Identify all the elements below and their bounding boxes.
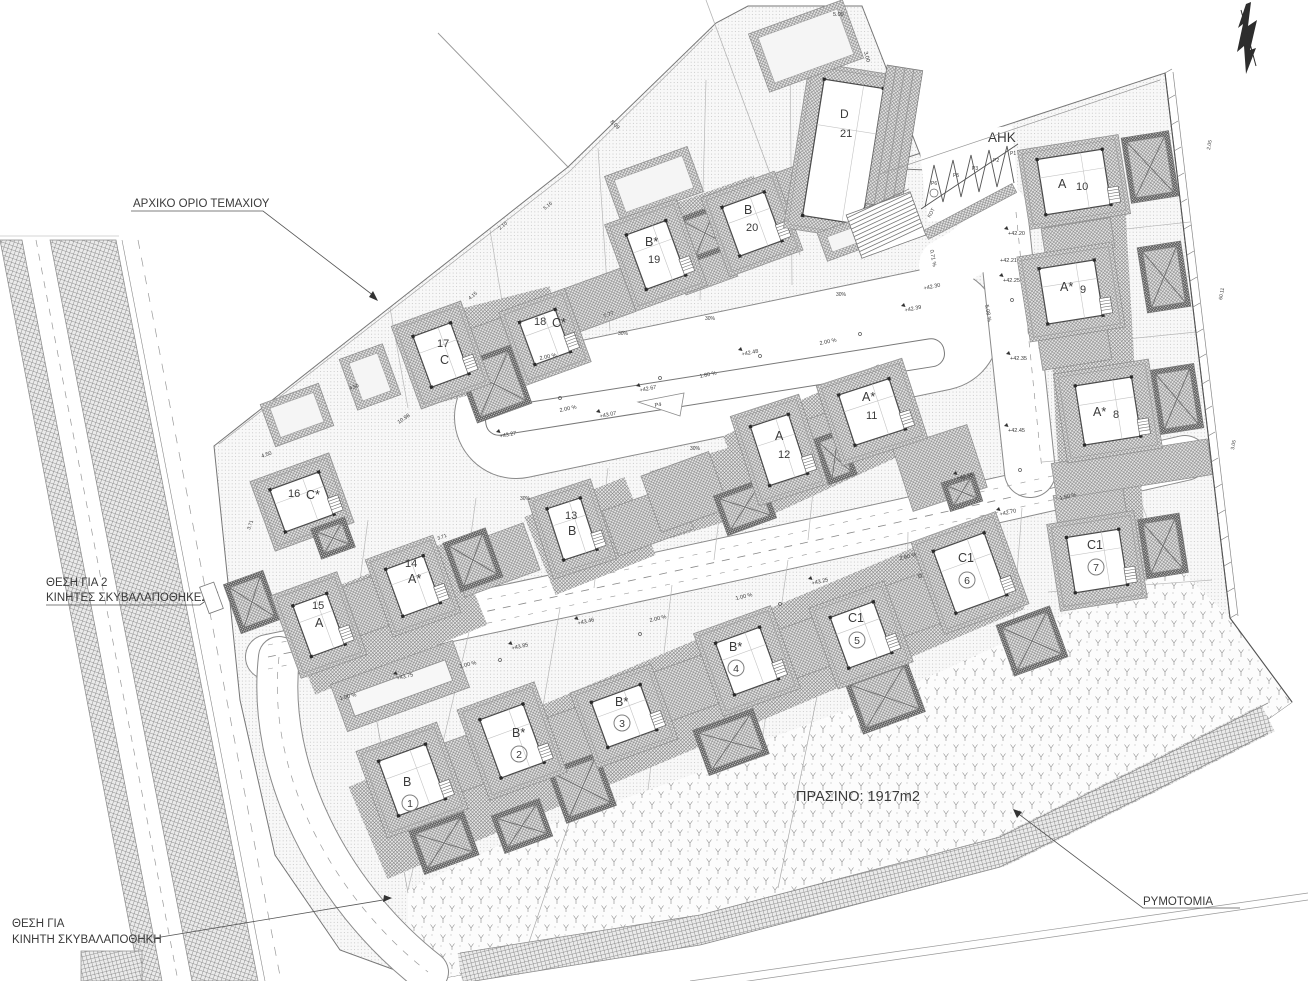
svg-text:P2: P2 xyxy=(993,158,999,164)
svg-text:P5: P5 xyxy=(953,173,959,179)
svg-text:8: 8 xyxy=(1113,409,1119,421)
svg-text:A: A xyxy=(315,616,324,630)
svg-text:9: 9 xyxy=(1080,284,1086,296)
svg-text:14: 14 xyxy=(405,558,417,570)
svg-text:6: 6 xyxy=(964,575,970,587)
svg-text:+42.21: +42.21 xyxy=(1000,258,1017,264)
svg-text:ΚΙΝΗΤΗ ΣΚΥΒΑΛΑΠΟΘΗΚΗ: ΚΙΝΗΤΗ ΣΚΥΒΑΛΑΠΟΘΗΚΗ xyxy=(12,934,162,946)
svg-text:A*: A* xyxy=(862,390,875,404)
svg-text:30%: 30% xyxy=(520,496,531,502)
svg-text:18: 18 xyxy=(534,316,546,328)
svg-text:12: 12 xyxy=(778,449,790,461)
svg-text:17: 17 xyxy=(437,338,449,350)
svg-text:P1: P1 xyxy=(1010,151,1016,157)
svg-text:2: 2 xyxy=(516,749,522,761)
svg-text:A: A xyxy=(1058,177,1067,191)
svg-text:ΠΡΑΣΙΝΟ: 1917m2: ΠΡΑΣΙΝΟ: 1917m2 xyxy=(796,789,920,805)
svg-text:C: C xyxy=(440,353,449,367)
svg-text:5.00: 5.00 xyxy=(833,12,844,18)
svg-text:30%: 30% xyxy=(705,316,716,322)
svg-text:C1: C1 xyxy=(848,611,864,625)
svg-text:ΡΥΜΟΤΟΜΙΑ: ΡΥΜΟΤΟΜΙΑ xyxy=(1143,896,1213,908)
svg-text:7: 7 xyxy=(1093,562,1099,574)
svg-text:+42.25: +42.25 xyxy=(1003,278,1020,284)
svg-text:B*: B* xyxy=(615,695,628,709)
svg-text:B*: B* xyxy=(729,640,742,654)
svg-text:16: 16 xyxy=(288,488,300,500)
svg-text:4: 4 xyxy=(733,663,739,675)
svg-text:P6: P6 xyxy=(931,181,937,187)
svg-text:20: 20 xyxy=(746,222,758,234)
svg-text:A: A xyxy=(775,429,784,443)
svg-text:B*: B* xyxy=(645,235,658,249)
svg-text:B: B xyxy=(744,203,752,217)
svg-text:30%: 30% xyxy=(690,446,701,452)
svg-text:C1: C1 xyxy=(958,551,974,565)
svg-text:5: 5 xyxy=(854,635,860,647)
svg-text:30%: 30% xyxy=(618,331,629,337)
svg-text:+42.20: +42.20 xyxy=(1008,231,1025,237)
svg-text:3: 3 xyxy=(619,718,625,730)
svg-text:19: 19 xyxy=(648,254,660,266)
svg-text:C1: C1 xyxy=(1087,538,1103,552)
svg-text:B*: B* xyxy=(512,726,525,740)
svg-text:B: B xyxy=(568,524,576,538)
svg-text:P3: P3 xyxy=(972,166,978,172)
svg-text:15: 15 xyxy=(312,600,324,612)
svg-text:13: 13 xyxy=(565,510,577,522)
svg-text:D: D xyxy=(840,107,849,121)
svg-text:+42.45: +42.45 xyxy=(1008,428,1025,434)
svg-text:ΚΙΝΗΤΕΣ ΣΚΥΒΑΛΑΠΟΘΗΚΕΣ: ΚΙΝΗΤΕΣ ΣΚΥΒΑΛΑΠΟΘΗΚΕΣ xyxy=(46,592,209,604)
svg-text:10: 10 xyxy=(1076,181,1088,193)
svg-text:11: 11 xyxy=(866,410,877,422)
svg-text:B: B xyxy=(403,775,411,789)
svg-text:A*: A* xyxy=(1060,280,1073,294)
svg-text:ΑΗΚ: ΑΗΚ xyxy=(988,130,1016,145)
svg-text:1: 1 xyxy=(407,798,413,810)
svg-text:A*: A* xyxy=(1093,405,1106,419)
svg-text:A*: A* xyxy=(408,572,421,586)
svg-text:C*: C* xyxy=(306,488,320,502)
svg-text:+42.35: +42.35 xyxy=(1010,356,1027,362)
svg-text:C*: C* xyxy=(552,316,566,330)
svg-text:30%: 30% xyxy=(836,292,847,298)
svg-text:ΘΕΣΗ ΓΙΑ 2: ΘΕΣΗ ΓΙΑ 2 xyxy=(46,577,107,589)
svg-text:21: 21 xyxy=(840,128,852,140)
svg-text:ΑΡΧΙΚΟ ΟΡΙΟ ΤΕΜΑΧΙΟΥ: ΑΡΧΙΚΟ ΟΡΙΟ ΤΕΜΑΧΙΟΥ xyxy=(133,198,270,210)
svg-text:P4: P4 xyxy=(654,402,662,409)
svg-text:ΘΕΣΗ ΓΙΑ: ΘΕΣΗ ΓΙΑ xyxy=(12,918,65,930)
